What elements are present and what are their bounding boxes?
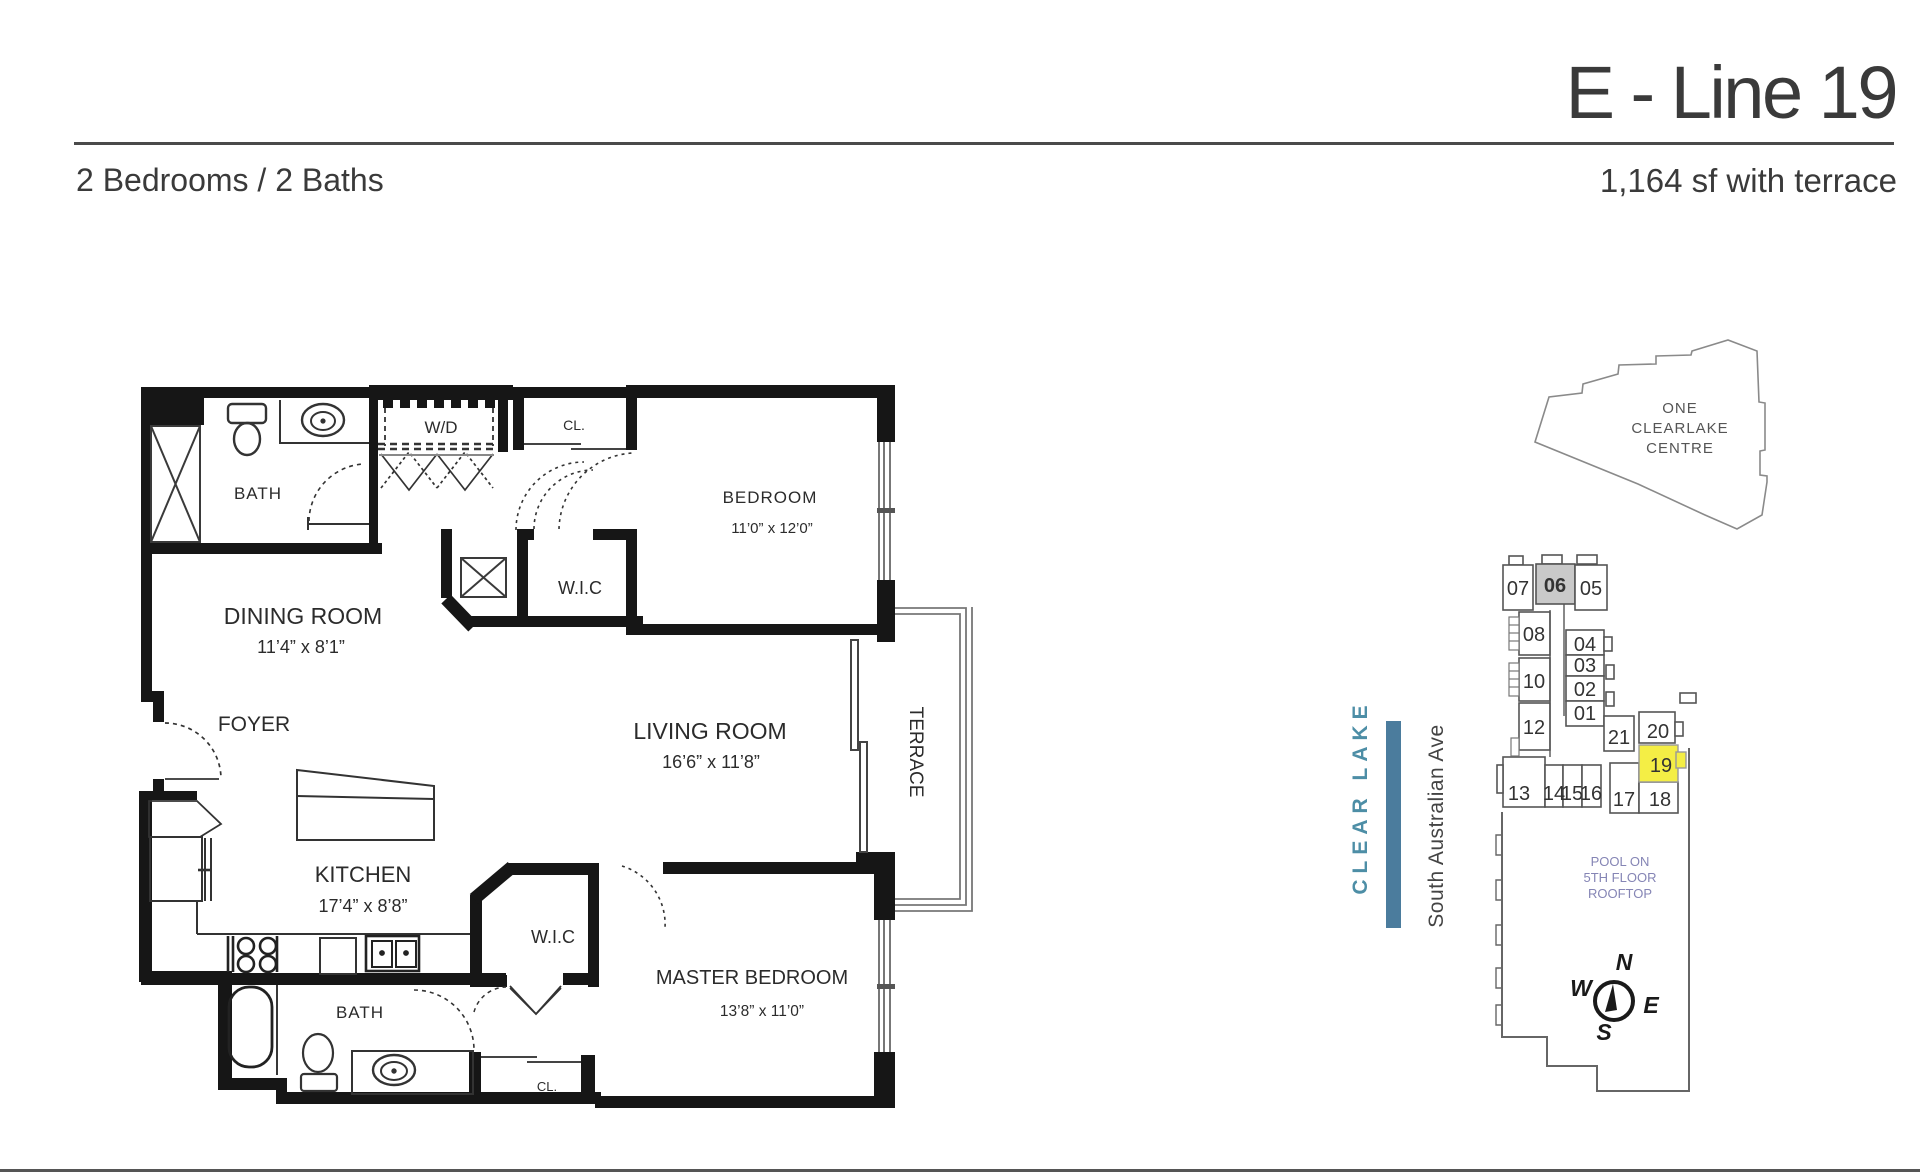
svg-text:06: 06 <box>1544 575 1566 597</box>
svg-text:W.I.C: W.I.C <box>531 927 575 947</box>
svg-text:11’0” x 12’0”: 11’0” x 12’0” <box>731 520 812 537</box>
svg-text:W/D: W/D <box>424 418 457 437</box>
svg-text:KITCHEN: KITCHEN <box>315 862 412 887</box>
svg-text:20: 20 <box>1647 721 1669 743</box>
svg-text:11’4” x 8’1”: 11’4” x 8’1” <box>257 637 345 657</box>
svg-text:E - Line 19: E - Line 19 <box>1566 51 1896 134</box>
svg-text:W: W <box>1570 975 1594 1001</box>
svg-text:N: N <box>1616 949 1633 975</box>
svg-text:W.I.C: W.I.C <box>558 578 602 598</box>
svg-text:CLEARLAKE: CLEARLAKE <box>1631 420 1728 437</box>
svg-text:04: 04 <box>1574 634 1596 656</box>
svg-text:16: 16 <box>1580 783 1602 805</box>
svg-text:CL.: CL. <box>563 417 585 433</box>
svg-text:1,164 sf with terrace: 1,164 sf with terrace <box>1600 162 1897 199</box>
svg-text:ROOFTOP: ROOFTOP <box>1588 886 1652 901</box>
svg-text:13: 13 <box>1508 783 1530 805</box>
svg-text:MASTER BEDROOM: MASTER BEDROOM <box>656 967 848 989</box>
svg-text:South Australian Ave: South Australian Ave <box>1425 724 1448 927</box>
svg-text:19: 19 <box>1650 755 1672 777</box>
svg-text:CENTRE: CENTRE <box>1646 440 1714 457</box>
svg-text:ONE: ONE <box>1662 400 1698 417</box>
svg-text:17’4” x 8’8”: 17’4” x 8’8” <box>318 896 407 916</box>
svg-text:12: 12 <box>1523 717 1545 739</box>
svg-text:05: 05 <box>1580 578 1602 600</box>
svg-text:08: 08 <box>1523 624 1545 646</box>
svg-text:10: 10 <box>1523 671 1545 693</box>
svg-text:5TH FLOOR: 5TH FLOOR <box>1584 870 1657 885</box>
svg-text:16’6” x 11’8”: 16’6” x 11’8” <box>662 752 760 772</box>
svg-text:BATH: BATH <box>234 484 282 503</box>
svg-text:01: 01 <box>1574 703 1596 725</box>
svg-text:CLEAR LAKE: CLEAR LAKE <box>1349 699 1372 894</box>
svg-text:02: 02 <box>1574 679 1596 701</box>
svg-text:POOL ON: POOL ON <box>1591 854 1650 869</box>
svg-text:S: S <box>1596 1019 1612 1045</box>
svg-text:21: 21 <box>1608 727 1630 749</box>
svg-text:E: E <box>1643 992 1659 1018</box>
svg-text:BEDROOM: BEDROOM <box>723 488 818 507</box>
svg-text:03: 03 <box>1574 655 1596 677</box>
svg-text:18: 18 <box>1649 789 1671 811</box>
svg-text:LIVING ROOM: LIVING ROOM <box>633 718 786 744</box>
svg-text:17: 17 <box>1613 789 1635 811</box>
svg-text:BATH: BATH <box>336 1003 384 1022</box>
svg-text:DINING ROOM: DINING ROOM <box>224 603 382 629</box>
svg-text:07: 07 <box>1507 578 1529 600</box>
svg-text:FOYER: FOYER <box>218 713 290 736</box>
svg-text:2 Bedrooms / 2 Baths: 2 Bedrooms / 2 Baths <box>76 162 384 198</box>
svg-text:13’8” x 11’0”: 13’8” x 11’0” <box>720 1003 804 1020</box>
svg-text:CL.: CL. <box>537 1079 557 1094</box>
svg-text:TERRACE: TERRACE <box>905 707 926 798</box>
